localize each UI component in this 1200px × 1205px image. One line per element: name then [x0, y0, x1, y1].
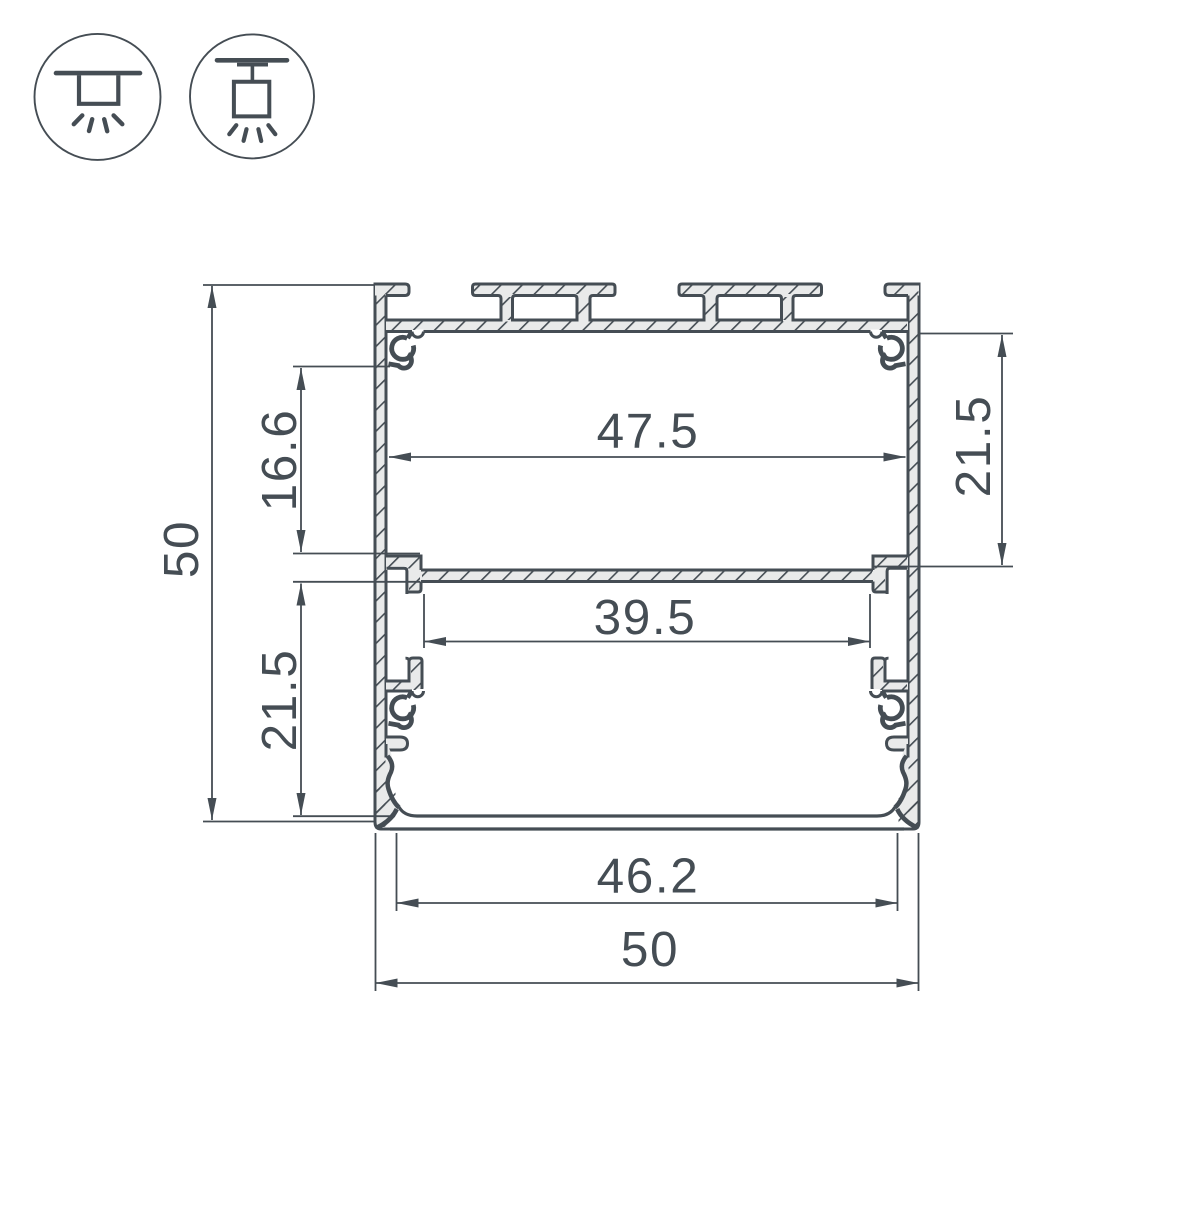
svg-text:21.5: 21.5 — [946, 395, 1001, 498]
svg-text:50: 50 — [154, 520, 209, 578]
svg-text:50: 50 — [621, 922, 679, 977]
svg-text:47.5: 47.5 — [597, 404, 700, 459]
svg-text:16.6: 16.6 — [252, 409, 307, 512]
svg-text:46.2: 46.2 — [597, 849, 700, 904]
svg-text:39.5: 39.5 — [594, 590, 697, 645]
svg-text:21.5: 21.5 — [252, 649, 307, 752]
